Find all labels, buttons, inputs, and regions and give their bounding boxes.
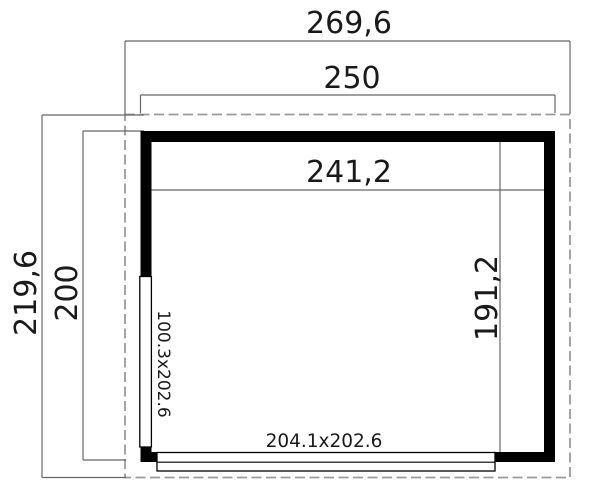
label-side-door-size: 100.3x202.6	[153, 310, 173, 417]
label-front-door-size: 204.1x202.6	[266, 431, 383, 452]
floor-plan-canvas: 269,6 250 241,2 219,6 200 191,2 100.3x20…	[0, 0, 600, 487]
dim-line-base-depth	[83, 131, 144, 460]
wall-top	[141, 131, 556, 142]
dim-line-base-width	[141, 95, 556, 113]
wall-left-upper-segment	[141, 131, 152, 277]
floor-plan-drawing: 269,6 250 241,2 219,6 200 191,2 100.3x20…	[0, 0, 600, 487]
label-base-depth: 200	[50, 264, 85, 321]
label-inner-width: 241,2	[306, 155, 392, 190]
label-base-width: 250	[323, 61, 380, 96]
wall-right	[544, 131, 555, 462]
label-outer-depth: 219,6	[9, 250, 44, 336]
side-door-leaf	[140, 277, 152, 448]
label-inner-depth: 191,2	[470, 255, 505, 341]
label-outer-width: 269,6	[306, 6, 392, 41]
wall-bottom-left-segment	[141, 452, 158, 462]
wall-bottom-right-segment	[495, 452, 555, 462]
